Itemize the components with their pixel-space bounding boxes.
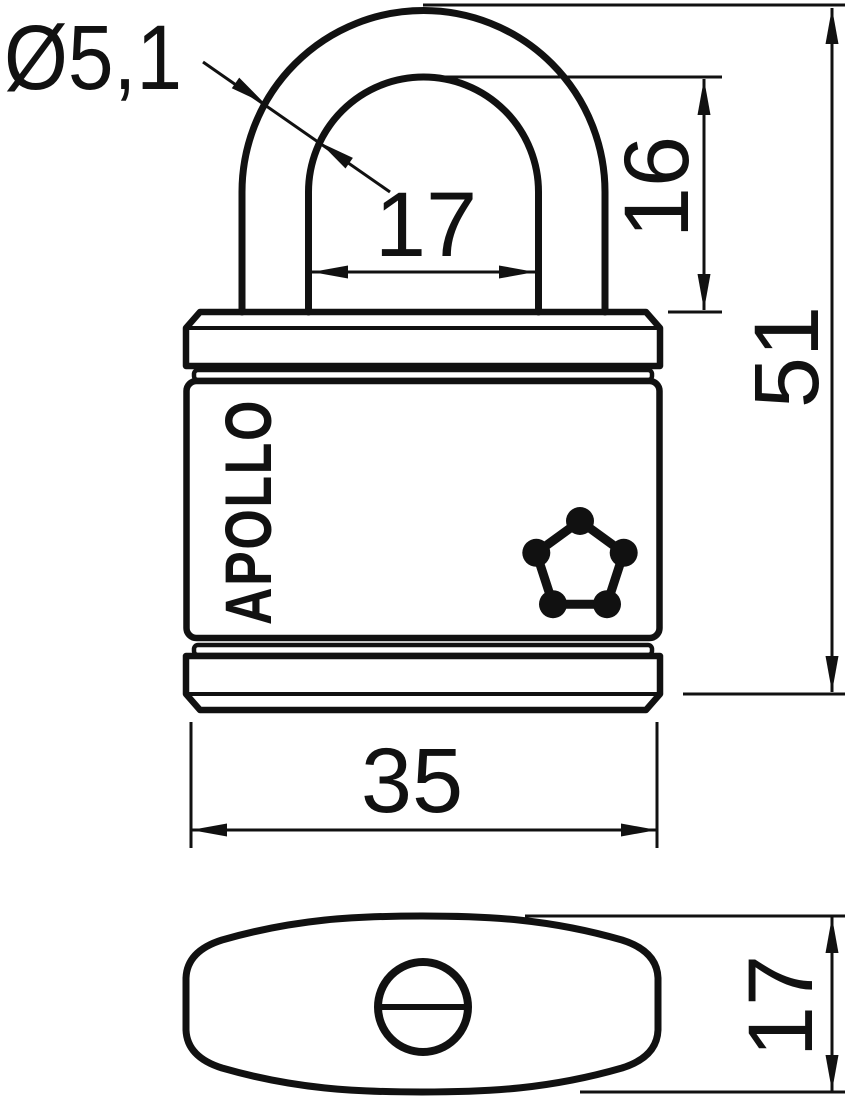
arrowhead bbox=[698, 274, 711, 310]
keyhole-icon bbox=[378, 962, 468, 1052]
shackle-diameter-value: Ø5,1 bbox=[4, 7, 182, 109]
arrowhead bbox=[826, 917, 839, 953]
pentagon-dot bbox=[566, 507, 594, 535]
dimension-overall-height: 51 bbox=[423, 5, 845, 694]
arrowhead bbox=[826, 8, 839, 44]
body-bottom-cap bbox=[186, 656, 660, 710]
technical-drawing-padlock: APOLLO Ø5,1 17 bbox=[0, 0, 845, 1100]
arrowhead bbox=[499, 266, 535, 279]
body-depth-value: 17 bbox=[730, 955, 832, 1057]
arrowhead bbox=[826, 656, 839, 692]
pentagon-dot bbox=[610, 539, 638, 567]
dimension-body-depth: 17 bbox=[525, 916, 845, 1092]
pentagon-logo-icon bbox=[522, 507, 637, 618]
front-view: APOLLO bbox=[186, 11, 660, 711]
body-top-cap bbox=[186, 312, 660, 366]
drawing-svg: APOLLO Ø5,1 17 bbox=[0, 0, 845, 1100]
overall-height-value: 51 bbox=[736, 306, 838, 408]
leader-line bbox=[203, 62, 390, 192]
arrowhead bbox=[621, 824, 657, 837]
pentagon-dot bbox=[539, 590, 567, 618]
shackle-inner-width-value: 17 bbox=[375, 174, 477, 276]
leader-arrowhead bbox=[232, 78, 265, 104]
arrowhead bbox=[191, 824, 227, 837]
dimension-body-width: 35 bbox=[191, 722, 657, 848]
shackle-clearance-height-value: 16 bbox=[606, 136, 708, 238]
leader-arrowhead bbox=[320, 142, 353, 168]
arrowhead bbox=[698, 79, 711, 115]
top-view bbox=[186, 916, 658, 1092]
body-width-value: 35 bbox=[361, 730, 463, 832]
arrowhead bbox=[826, 1055, 839, 1091]
pentagon-dot bbox=[593, 590, 621, 618]
brand-label: APOLLO bbox=[211, 399, 285, 625]
dimension-shackle-inner-width: 17 bbox=[312, 174, 535, 279]
pentagon-dot bbox=[522, 539, 550, 567]
arrowhead bbox=[312, 266, 348, 279]
